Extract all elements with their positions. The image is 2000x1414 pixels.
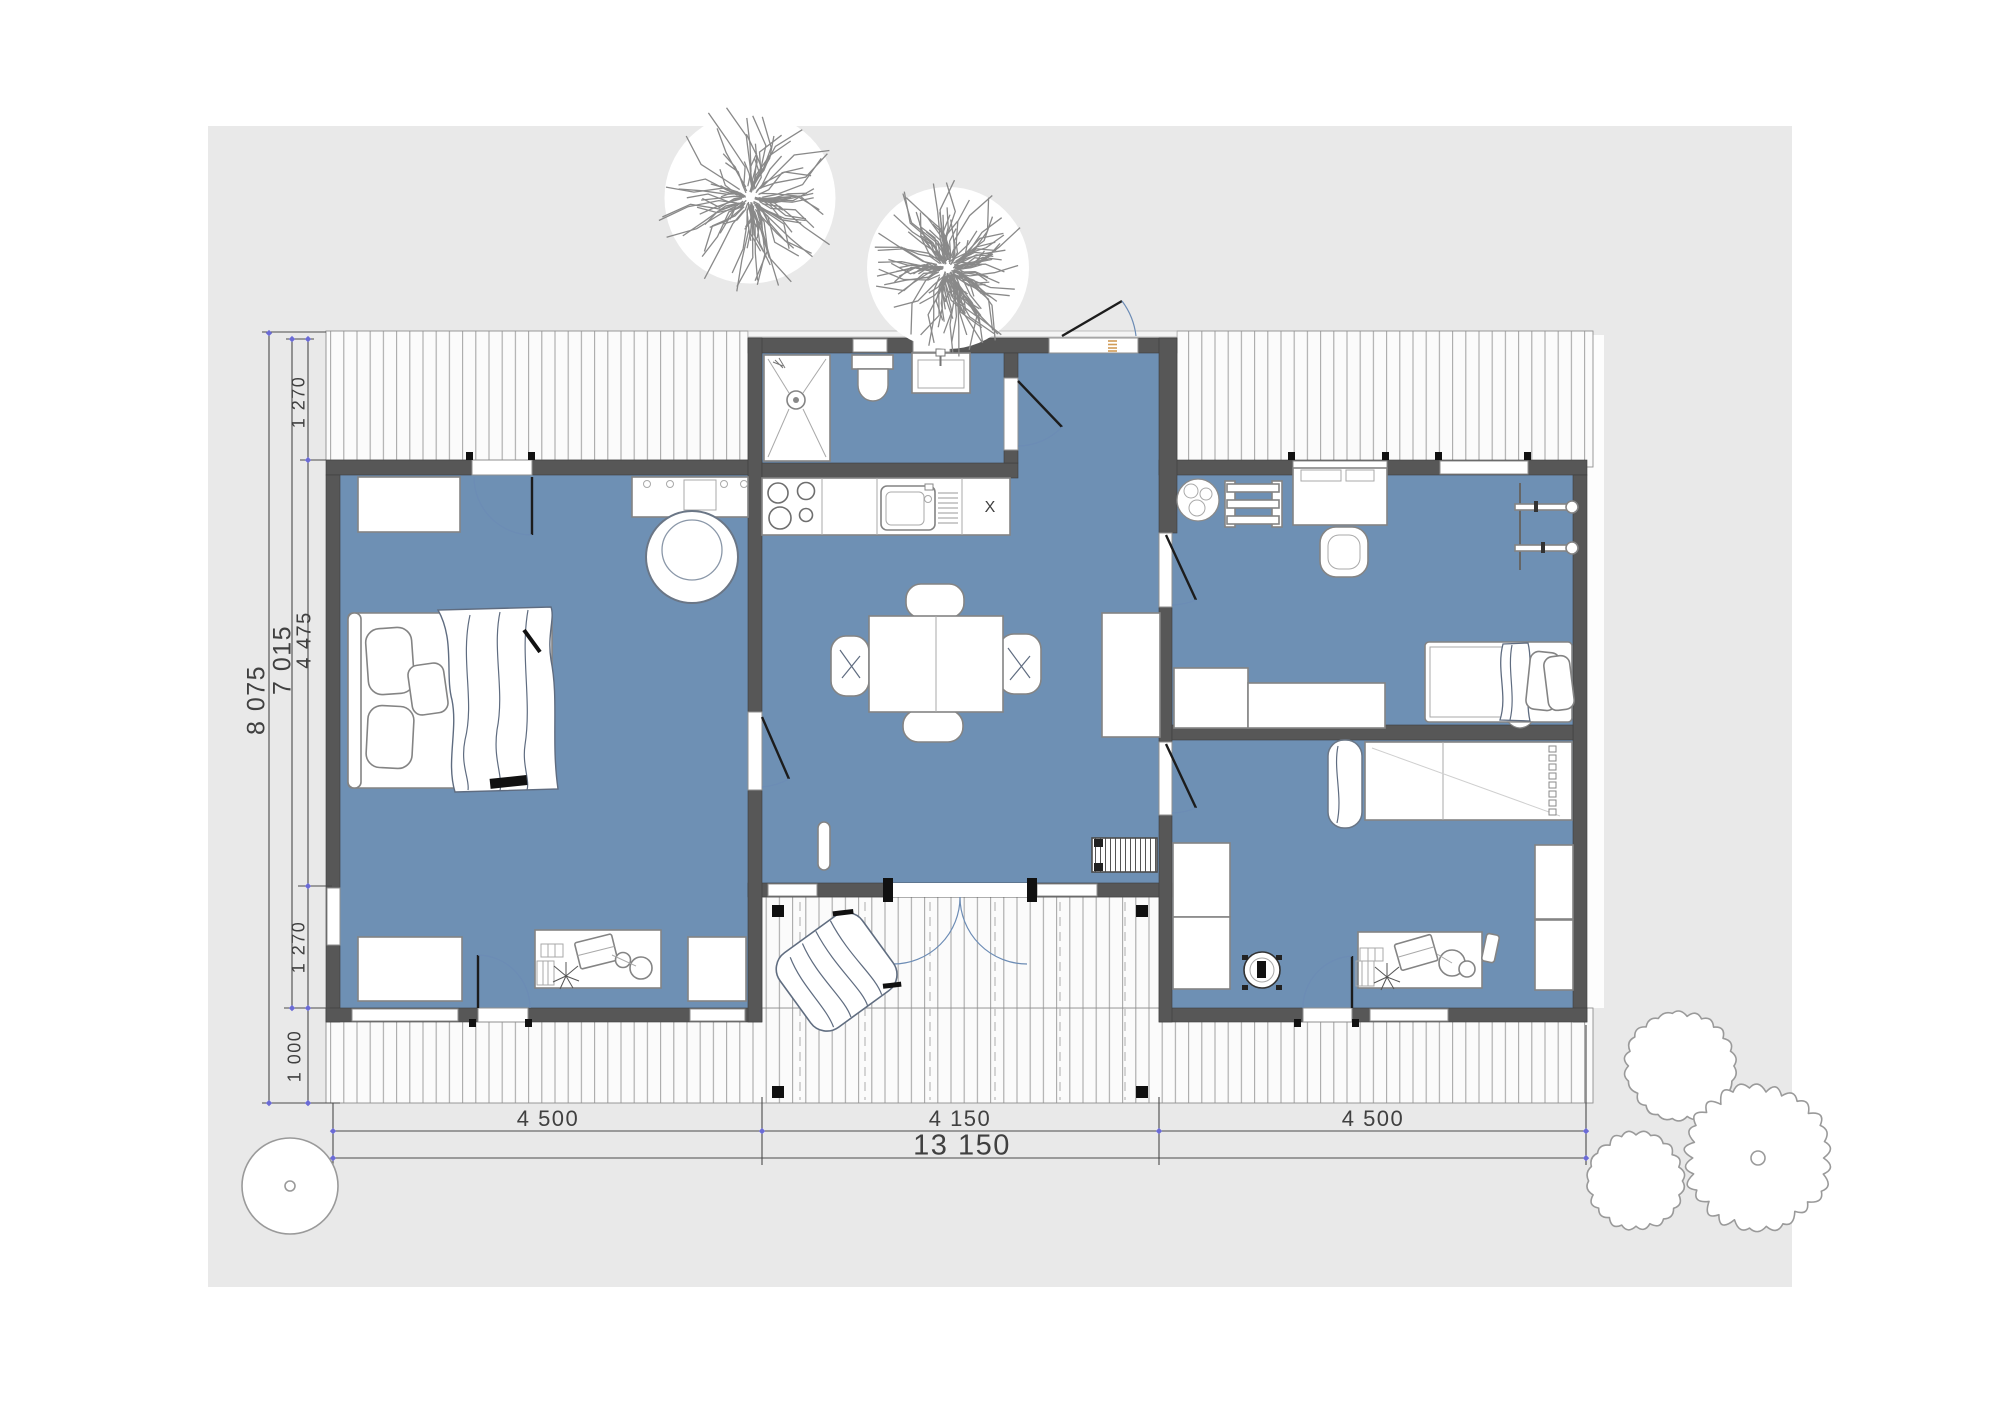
wardrobe (358, 477, 460, 532)
bathroom-sink (912, 349, 970, 393)
toy-shelf (1225, 481, 1282, 527)
dim-label-left-overall: 8 075 (243, 665, 272, 735)
bolster-cushion (1328, 740, 1362, 828)
dining-chair (906, 584, 964, 618)
closet (1248, 683, 1385, 728)
wall-segment (326, 460, 762, 475)
wall-segment (762, 463, 1018, 478)
window (1037, 884, 1097, 896)
tree (242, 1138, 338, 1234)
floor-plan-drawing (0, 0, 2000, 1414)
dim-label-bottom-overall: 13 150 (913, 1130, 1011, 1163)
deck-top-left (326, 331, 748, 460)
dim-label-bottom-right: 4 500 (1342, 1106, 1405, 1132)
wall-segment (1159, 815, 1172, 1022)
dim-label-left-deck: 1 000 (285, 1030, 306, 1083)
dim-label-left-lower: 1 270 (289, 921, 310, 974)
wall-segment (1004, 450, 1018, 463)
wall-segment (1573, 475, 1587, 1022)
closet (1535, 920, 1573, 990)
closet (1173, 843, 1230, 917)
second-bedroom-desk (1356, 932, 1500, 990)
dining-chair (831, 636, 869, 696)
shower (764, 355, 830, 461)
wardrobe-row (1365, 742, 1572, 820)
bedroom-desk (535, 930, 661, 989)
hall-closet (1102, 613, 1160, 737)
closet (1173, 917, 1230, 989)
dim-label-left-top: 1 270 (289, 376, 310, 429)
window (1370, 1009, 1448, 1021)
dim-label-bottom-left: 4 500 (517, 1106, 580, 1132)
window-seat (358, 937, 462, 1001)
dim-label-left-mid: 4 475 (294, 611, 317, 669)
window (690, 1009, 745, 1021)
teddy-bear-rug (1177, 479, 1219, 521)
window-seat (688, 937, 746, 1001)
wall-segment (1159, 607, 1172, 742)
porch-post (1136, 1086, 1148, 1098)
deck-top-right (1177, 331, 1593, 467)
wall-segment (748, 338, 762, 712)
porch-post (772, 1086, 784, 1098)
window (768, 884, 817, 896)
window (853, 339, 887, 352)
kitchen-appliance-mark: X (985, 499, 996, 517)
window (1440, 461, 1528, 474)
dim-label-bottom-mid: 4 150 (929, 1106, 992, 1132)
double-bed (348, 607, 558, 792)
window (327, 888, 340, 945)
wall-segment (1004, 353, 1018, 378)
porch-post (1136, 905, 1148, 917)
window (352, 1009, 458, 1021)
dining-chair (903, 710, 963, 742)
tree (1587, 1131, 1685, 1230)
vanity-chair (646, 511, 738, 603)
wall-segment (748, 790, 762, 1022)
closet (1535, 845, 1573, 919)
wall-shelf (818, 822, 830, 870)
radiator (1092, 838, 1157, 872)
porch-post (772, 905, 784, 917)
kids-bed (1425, 642, 1575, 728)
closet (1174, 668, 1248, 728)
floor-plan-canvas: 8 075 7 015 4 475 1 270 1 270 1 000 4 50… (0, 0, 2000, 1414)
kitchen-counter (762, 478, 1010, 535)
wall-segment (1159, 338, 1177, 533)
